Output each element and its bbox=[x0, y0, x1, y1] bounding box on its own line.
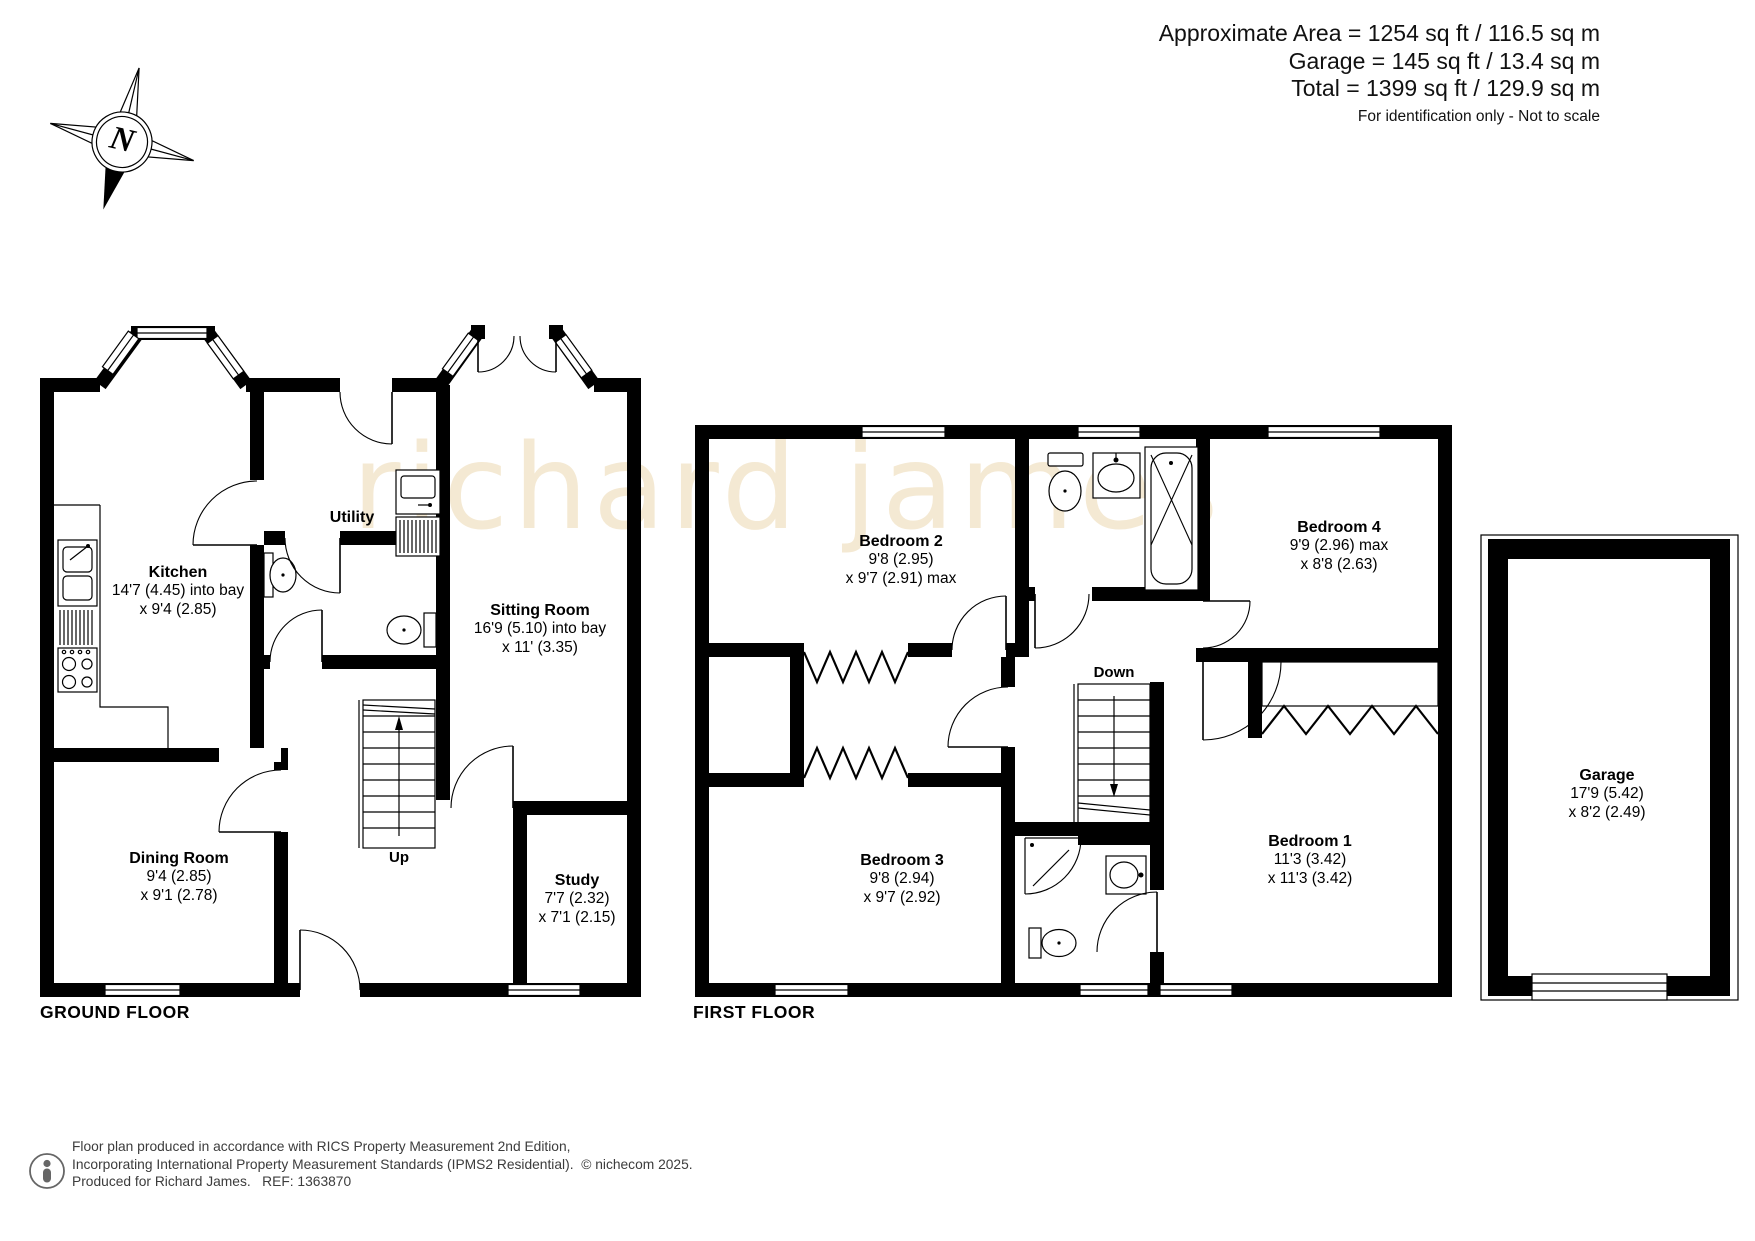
first-floor-title: FIRST FLOOR bbox=[693, 1002, 815, 1023]
stairs-down-label: Down bbox=[1094, 664, 1135, 681]
wc-toilet-icon bbox=[387, 613, 436, 647]
bedroom1-label: Bedroom 1 11'3 (3.42) x 11'3 (3.42) bbox=[1268, 832, 1353, 888]
kitchen-sink-icon bbox=[54, 505, 168, 748]
study-label: Study 7'7 (2.32) x 7'1 (2.15) bbox=[538, 871, 615, 927]
bathroom-toilet-icon bbox=[1048, 453, 1083, 511]
not-to-scale-note: For identification only - Not to scale bbox=[1159, 108, 1600, 126]
footer-line2: Incorporating International Property Mea… bbox=[72, 1156, 693, 1174]
approximate-area-line: Approximate Area = 1254 sq ft / 116.5 sq… bbox=[1159, 20, 1600, 48]
utility-label: Utility bbox=[330, 508, 374, 527]
sitting-room-label: Sitting Room 16'9 (5.10) into bay x 11' … bbox=[474, 601, 606, 657]
floorplan-page: richard james bbox=[0, 0, 1755, 1241]
wc-basin-icon bbox=[264, 553, 296, 597]
ground-door-arcs bbox=[193, 392, 513, 990]
bedroom4-label: Bedroom 4 9'9 (2.96) max x 8'8 (2.63) bbox=[1290, 518, 1389, 574]
ensuite-shower-icon bbox=[1025, 838, 1081, 894]
first-floor-plan bbox=[695, 425, 1452, 997]
footer-disclaimer: Floor plan produced in accordance with R… bbox=[72, 1138, 693, 1191]
footer-line3: Produced for Richard James. REF: 1363870 bbox=[72, 1173, 693, 1191]
garage-door bbox=[1532, 974, 1667, 1000]
stairs-up-label: Up bbox=[389, 849, 409, 866]
kitchen-hob-icon bbox=[58, 648, 97, 692]
footer-line1: Floor plan produced in accordance with R… bbox=[72, 1138, 693, 1156]
dining-room-label: Dining Room 9'4 (2.85) x 9'1 (2.78) bbox=[129, 849, 229, 905]
sitting-room-bay-doors bbox=[440, 325, 594, 385]
ensuite-sink-icon bbox=[1106, 856, 1146, 894]
kitchen-label: Kitchen 14'7 (4.45) into bay x 9'4 (2.85… bbox=[112, 563, 244, 619]
ground-windows bbox=[105, 982, 580, 998]
ground-floor-title: GROUND FLOOR bbox=[40, 1002, 190, 1023]
kitchen-bay-window bbox=[100, 326, 246, 385]
total-area-line: Total = 1399 sq ft / 129.9 sq m bbox=[1159, 75, 1600, 103]
ensuite-toilet-icon bbox=[1029, 928, 1076, 958]
floorplan-drawing bbox=[0, 0, 1755, 1241]
bedroom2-label: Bedroom 2 9'8 (2.95) x 9'7 (2.91) max bbox=[846, 532, 957, 588]
bathroom-sink-icon bbox=[1093, 453, 1140, 498]
stairs-up bbox=[359, 700, 435, 848]
area-summary: Approximate Area = 1254 sq ft / 116.5 sq… bbox=[1159, 20, 1600, 126]
garage-area-line: Garage = 145 sq ft / 13.4 sq m bbox=[1159, 48, 1600, 76]
utility-appliances-icon bbox=[396, 470, 440, 556]
bathroom-bath-icon bbox=[1145, 447, 1198, 590]
stairs-down bbox=[1074, 684, 1150, 828]
garage-label: Garage 17'9 (5.42) x 8'2 (2.49) bbox=[1568, 766, 1645, 822]
bedroom3-label: Bedroom 3 9'8 (2.94) x 9'7 (2.92) bbox=[860, 851, 944, 907]
